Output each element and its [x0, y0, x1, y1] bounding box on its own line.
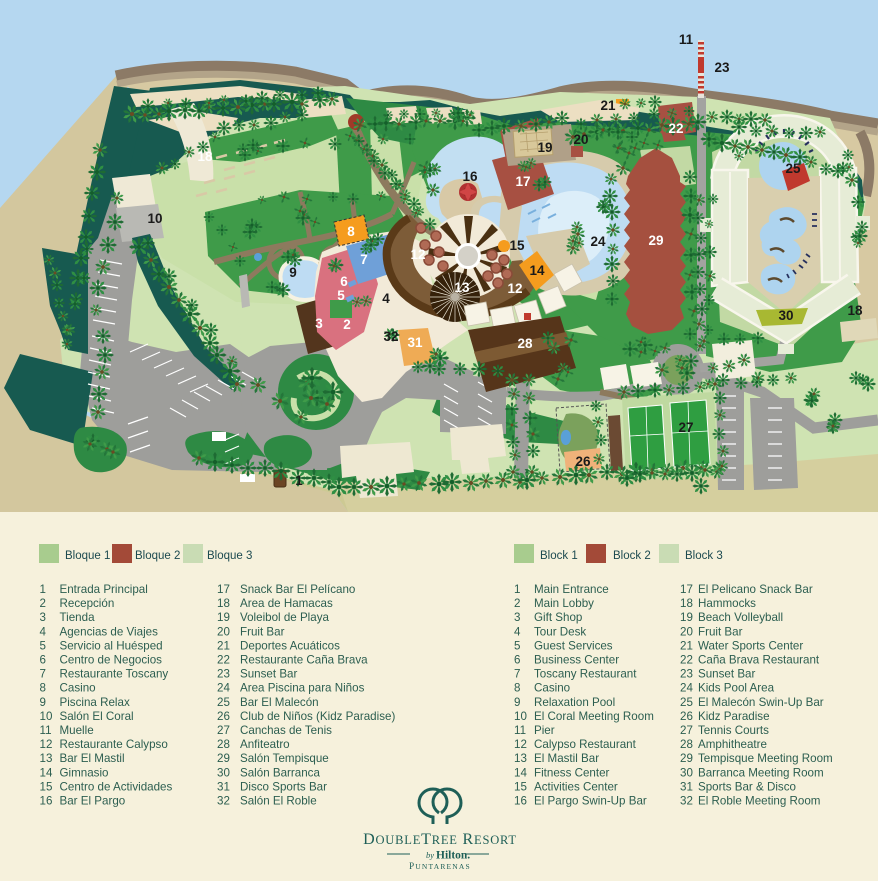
svg-text:5: 5 — [40, 639, 46, 652]
svg-text:18: 18 — [217, 597, 230, 610]
svg-text:El Pargo Swin-Up Bar: El Pargo Swin-Up Bar — [534, 795, 647, 808]
svg-text:3: 3 — [315, 316, 323, 331]
svg-text:El Roble Meeting Room: El Roble Meeting Room — [698, 795, 820, 808]
svg-text:21: 21 — [217, 639, 230, 652]
svg-text:Salón Tempisque: Salón Tempisque — [240, 752, 329, 765]
svg-text:Water Sports Center: Water Sports Center — [698, 639, 803, 652]
svg-text:25: 25 — [785, 161, 801, 176]
svg-text:15: 15 — [514, 780, 527, 793]
svg-text:28: 28 — [217, 738, 230, 751]
svg-text:18: 18 — [197, 149, 213, 164]
svg-text:Tennis Courts: Tennis Courts — [698, 724, 769, 737]
svg-text:16: 16 — [514, 795, 527, 808]
svg-text:6: 6 — [514, 654, 520, 667]
svg-text:9: 9 — [289, 265, 297, 280]
svg-text:24: 24 — [217, 682, 230, 695]
svg-text:Sunset Bar: Sunset Bar — [698, 668, 755, 681]
svg-text:Entrada Principal: Entrada Principal — [60, 583, 148, 596]
svg-text:DOUBLETREE RESORT: DOUBLETREE RESORT — [363, 831, 517, 848]
svg-text:4: 4 — [514, 625, 521, 638]
svg-text:23: 23 — [714, 60, 730, 75]
svg-text:2: 2 — [40, 597, 46, 610]
svg-text:4: 4 — [40, 625, 47, 638]
svg-text:Casino: Casino — [534, 682, 570, 695]
svg-text:Sports Bar & Disco: Sports Bar & Disco — [698, 780, 796, 793]
svg-text:Block 3: Block 3 — [685, 550, 723, 562]
svg-text:Tour Desk: Tour Desk — [534, 625, 586, 638]
svg-text:Kids Pool Area: Kids Pool Area — [698, 682, 775, 695]
svg-text:17: 17 — [217, 583, 230, 596]
svg-text:12: 12 — [514, 738, 527, 751]
svg-text:8: 8 — [347, 224, 355, 239]
svg-text:Club de Niños (Kidz Paradise): Club de Niños (Kidz Paradise) — [240, 710, 395, 723]
svg-text:Piscina Relax: Piscina Relax — [60, 696, 130, 709]
svg-text:4: 4 — [382, 291, 390, 306]
svg-text:16: 16 — [462, 169, 478, 184]
svg-text:14: 14 — [514, 766, 527, 779]
svg-text:Bar El Mastil: Bar El Mastil — [60, 752, 125, 765]
svg-text:13: 13 — [454, 280, 470, 295]
svg-text:Main Lobby: Main Lobby — [534, 597, 594, 610]
svg-text:22: 22 — [668, 121, 683, 136]
svg-text:El Pelicano Snack Bar: El Pelicano Snack Bar — [698, 583, 813, 596]
svg-text:19: 19 — [680, 611, 693, 624]
svg-text:1: 1 — [514, 583, 520, 596]
svg-text:Block 1: Block 1 — [540, 550, 578, 562]
svg-text:7: 7 — [360, 252, 368, 267]
svg-text:11: 11 — [40, 724, 52, 737]
svg-text:26: 26 — [680, 710, 693, 723]
svg-text:14: 14 — [40, 766, 53, 779]
svg-text:11: 11 — [514, 724, 526, 737]
svg-text:Bloque 2: Bloque 2 — [135, 550, 180, 562]
svg-text:Centro de Actividades: Centro de Actividades — [60, 780, 173, 793]
svg-text:13: 13 — [514, 752, 527, 765]
svg-text:Servicio al Huésped: Servicio al Huésped — [60, 639, 163, 652]
svg-text:30: 30 — [680, 766, 693, 779]
svg-text:2: 2 — [514, 597, 520, 610]
svg-text:22: 22 — [680, 654, 693, 667]
svg-text:30: 30 — [778, 308, 793, 323]
svg-text:Salón El Roble: Salón El Roble — [240, 795, 317, 808]
svg-text:Bar El Pargo: Bar El Pargo — [60, 795, 126, 808]
svg-text:Recepción: Recepción — [60, 597, 115, 610]
svg-text:Gimnasio: Gimnasio — [60, 766, 109, 779]
svg-text:Guest Services: Guest Services — [534, 639, 613, 652]
svg-text:32: 32 — [383, 329, 398, 344]
svg-text:28: 28 — [680, 738, 693, 751]
svg-text:Voleibol de Playa: Voleibol de Playa — [240, 611, 330, 624]
svg-text:Caña Brava Restaurant: Caña Brava Restaurant — [698, 654, 820, 667]
svg-text:Pier: Pier — [534, 724, 555, 737]
svg-text:1: 1 — [40, 583, 46, 596]
svg-text:Kidz Paradise: Kidz Paradise — [698, 710, 770, 723]
svg-text:19: 19 — [217, 611, 230, 624]
svg-text:Agencias de Viajes: Agencias de Viajes — [60, 625, 159, 638]
svg-text:Fruit Bar: Fruit Bar — [698, 625, 743, 638]
svg-text:11: 11 — [679, 32, 694, 47]
svg-text:12: 12 — [410, 247, 425, 262]
svg-text:29: 29 — [680, 752, 693, 765]
svg-text:Centro de Negocios: Centro de Negocios — [60, 654, 163, 667]
svg-text:Restaurante Caña Brava: Restaurante Caña Brava — [240, 654, 368, 667]
svg-text:Hammocks: Hammocks — [698, 597, 756, 610]
svg-text:31: 31 — [407, 335, 423, 350]
svg-text:Area Piscina para Niños: Area Piscina para Niños — [240, 682, 365, 695]
svg-text:Beach Volleyball: Beach Volleyball — [698, 611, 783, 624]
svg-text:15: 15 — [40, 780, 53, 793]
svg-text:3: 3 — [40, 611, 46, 624]
svg-text:31: 31 — [217, 780, 230, 793]
svg-text:32: 32 — [217, 795, 230, 808]
svg-text:Activities Center: Activities Center — [534, 780, 618, 793]
svg-text:El Coral Meeting Room: El Coral Meeting Room — [534, 710, 654, 723]
svg-text:2: 2 — [343, 317, 351, 332]
svg-text:21: 21 — [680, 639, 693, 652]
svg-text:30: 30 — [217, 766, 230, 779]
svg-text:12: 12 — [507, 281, 522, 296]
svg-text:5: 5 — [514, 639, 520, 652]
svg-text:17: 17 — [515, 174, 530, 189]
svg-text:Disco Sports Bar: Disco Sports Bar — [240, 780, 327, 793]
svg-text:18: 18 — [847, 303, 863, 318]
svg-text:20: 20 — [680, 625, 693, 638]
svg-text:Restaurante Calypso: Restaurante Calypso — [60, 738, 168, 751]
svg-text:El Malecón Swin-Up Bar: El Malecón Swin-Up Bar — [698, 696, 824, 709]
svg-text:27: 27 — [678, 420, 693, 435]
svg-text:Calypso Restaurant: Calypso Restaurant — [534, 738, 637, 751]
svg-text:24: 24 — [680, 682, 693, 695]
svg-text:Sunset Bar: Sunset Bar — [240, 668, 297, 681]
svg-text:9: 9 — [514, 696, 520, 709]
svg-text:19: 19 — [537, 140, 552, 155]
svg-text:26: 26 — [217, 710, 230, 723]
svg-text:Bloque 3: Bloque 3 — [207, 550, 252, 562]
svg-text:31: 31 — [680, 780, 693, 793]
svg-text:Bar El Malecón: Bar El Malecón — [240, 696, 319, 709]
svg-text:17: 17 — [680, 583, 693, 596]
svg-text:15: 15 — [509, 238, 525, 253]
svg-text:32: 32 — [680, 795, 693, 808]
svg-text:9: 9 — [40, 696, 46, 709]
svg-text:28: 28 — [517, 336, 533, 351]
svg-text:6: 6 — [340, 274, 348, 289]
svg-text:Canchas de Tenis: Canchas de Tenis — [240, 724, 332, 737]
svg-text:14: 14 — [529, 263, 545, 278]
svg-text:Salón Barranca: Salón Barranca — [240, 766, 320, 779]
svg-text:Bloque 1: Bloque 1 — [65, 550, 110, 562]
svg-text:Snack Bar El Pelícano: Snack Bar El Pelícano — [240, 583, 355, 596]
svg-text:Relaxation Pool: Relaxation Pool — [534, 696, 615, 709]
svg-text:8: 8 — [514, 682, 520, 695]
svg-text:27: 27 — [217, 724, 230, 737]
svg-text:20: 20 — [217, 625, 230, 638]
svg-text:Tempisque Meeting Room: Tempisque Meeting Room — [698, 752, 833, 765]
svg-text:20: 20 — [573, 132, 588, 147]
svg-text:13: 13 — [40, 752, 53, 765]
svg-text:23: 23 — [217, 668, 230, 681]
svg-text:Hilton.: Hilton. — [436, 850, 470, 862]
svg-text:Main Entrance: Main Entrance — [534, 583, 609, 596]
svg-text:8: 8 — [40, 682, 46, 695]
svg-text:21: 21 — [600, 98, 616, 113]
svg-text:Casino: Casino — [60, 682, 96, 695]
svg-text:Fitness Center: Fitness Center — [534, 766, 610, 779]
svg-text:10: 10 — [514, 710, 527, 723]
svg-text:3: 3 — [514, 611, 520, 624]
svg-text:22: 22 — [217, 654, 230, 667]
svg-text:5: 5 — [337, 288, 345, 303]
svg-text:7: 7 — [40, 668, 46, 681]
svg-text:Deportes Acuáticos: Deportes Acuáticos — [240, 639, 340, 652]
svg-text:Fruit Bar: Fruit Bar — [240, 625, 285, 638]
svg-text:PUNTARENAS: PUNTARENAS — [409, 861, 471, 871]
svg-text:23: 23 — [680, 668, 693, 681]
svg-text:1: 1 — [295, 473, 303, 488]
svg-text:16: 16 — [40, 795, 53, 808]
svg-text:26: 26 — [575, 454, 591, 469]
svg-text:10: 10 — [40, 710, 53, 723]
svg-text:Toscany Restaurant: Toscany Restaurant — [534, 668, 637, 681]
svg-text:Anfiteatro: Anfiteatro — [240, 738, 290, 751]
svg-text:by: by — [426, 850, 434, 860]
svg-text:El Mastil Bar: El Mastil Bar — [534, 752, 599, 765]
svg-text:24: 24 — [590, 234, 606, 249]
svg-text:Restaurante Toscany: Restaurante Toscany — [60, 668, 169, 681]
svg-text:Amphitheatre: Amphitheatre — [698, 738, 767, 751]
svg-text:27: 27 — [680, 724, 693, 737]
svg-text:18: 18 — [680, 597, 693, 610]
svg-text:12: 12 — [40, 738, 53, 751]
svg-text:Block 2: Block 2 — [613, 550, 651, 562]
svg-text:25: 25 — [680, 696, 693, 709]
svg-text:10: 10 — [147, 211, 162, 226]
svg-text:Area de Hamacas: Area de Hamacas — [240, 597, 333, 610]
svg-text:Muelle: Muelle — [60, 724, 94, 737]
svg-text:Tienda: Tienda — [60, 611, 96, 624]
svg-text:Barranca Meeting Room: Barranca Meeting Room — [698, 766, 824, 779]
svg-text:Business Center: Business Center — [534, 654, 619, 667]
svg-text:25: 25 — [217, 696, 230, 709]
svg-text:Gift Shop: Gift Shop — [534, 611, 582, 624]
svg-text:7: 7 — [514, 668, 520, 681]
svg-text:29: 29 — [217, 752, 230, 765]
svg-text:29: 29 — [648, 233, 663, 248]
svg-text:6: 6 — [40, 654, 46, 667]
svg-text:Salón El Coral: Salón El Coral — [60, 710, 134, 723]
